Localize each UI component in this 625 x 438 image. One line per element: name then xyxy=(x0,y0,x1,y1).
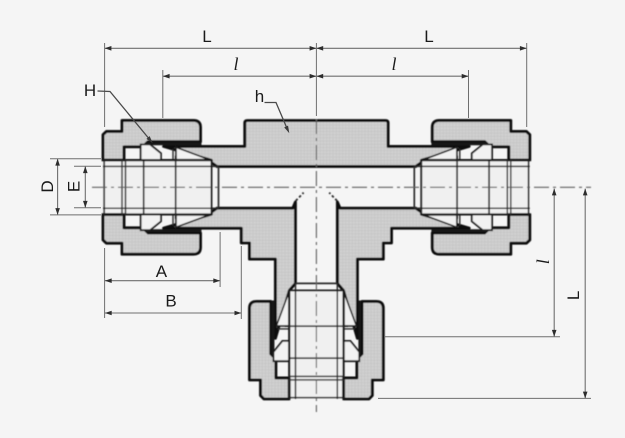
svg-text:L: L xyxy=(424,27,433,46)
svg-text:E: E xyxy=(64,181,83,192)
svg-text:l: l xyxy=(233,54,238,74)
svg-text:L: L xyxy=(564,291,583,300)
svg-text:A: A xyxy=(156,262,168,281)
svg-text:l: l xyxy=(533,259,553,264)
svg-text:H: H xyxy=(84,81,96,100)
svg-text:B: B xyxy=(165,292,176,311)
svg-text:h: h xyxy=(255,87,264,106)
svg-text:D: D xyxy=(38,180,57,192)
svg-text:l: l xyxy=(391,54,396,74)
svg-text:L: L xyxy=(202,27,211,46)
